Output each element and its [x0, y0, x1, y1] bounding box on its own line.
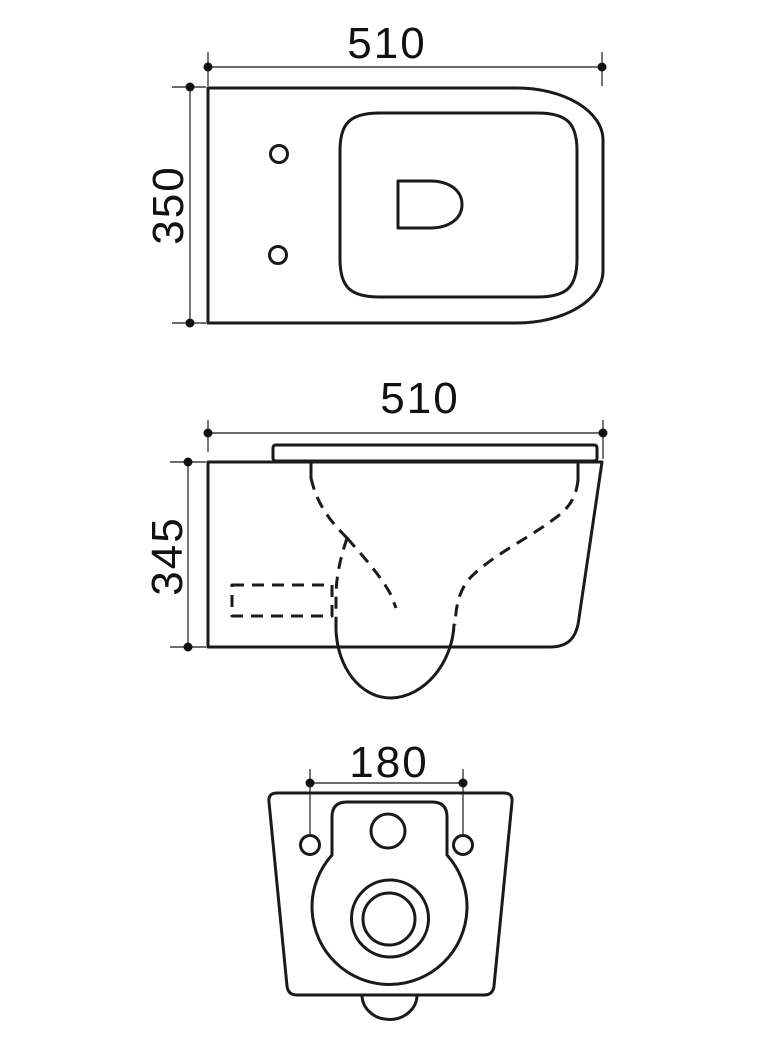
- top-view-outline: [208, 88, 603, 323]
- trapway-dashed-right: [455, 480, 578, 625]
- dim-endpoint-dot: [184, 458, 193, 467]
- side-view-height-label: 345: [143, 516, 192, 595]
- side-view-height-dimension: 345: [143, 458, 206, 652]
- side-view-outline: [208, 462, 602, 647]
- dim-endpoint-dot: [186, 83, 195, 92]
- top-view-depth-label: 350: [144, 165, 193, 244]
- dim-endpoint-dot: [598, 63, 607, 72]
- seat-fixing-hole-top: [271, 146, 288, 163]
- rear-view-hole-spacing-dimension: 180: [306, 738, 468, 836]
- dim-endpoint-dot: [599, 429, 608, 438]
- seat-opening-outline: [340, 113, 577, 297]
- fixing-hole-right: [454, 836, 473, 855]
- technical-drawing-page: 510 350 510: [0, 0, 780, 1040]
- wall-hung-toilet-drawing: 510 350 510: [0, 0, 780, 1040]
- dim-endpoint-dot: [459, 779, 468, 788]
- drain-outlet-inner: [363, 893, 415, 945]
- bowl-underside-arc: [336, 625, 454, 698]
- top-view-depth-dimension: 350: [144, 83, 206, 328]
- bottom-outlet-bump: [362, 995, 417, 1020]
- seat-fixing-hole-bottom: [270, 247, 287, 264]
- dim-endpoint-dot: [306, 779, 315, 788]
- inlet-box-dashed: [232, 585, 332, 616]
- dim-endpoint-dot: [186, 319, 195, 328]
- side-view-width-label: 510: [380, 374, 459, 423]
- extension-ticks: [208, 420, 603, 459]
- trapway-dashed-left: [311, 478, 396, 629]
- top-view: 510 350: [144, 19, 607, 328]
- side-view: 510 345: [143, 374, 608, 698]
- dim-endpoint-dot: [184, 643, 193, 652]
- dim-endpoint-dot: [204, 429, 213, 438]
- water-inlet-hole: [371, 814, 405, 848]
- rear-view-hole-spacing-label: 180: [349, 738, 428, 787]
- seat-lid-outline: [273, 445, 597, 461]
- dim-endpoint-dot: [204, 63, 213, 72]
- fixing-hole-left: [301, 836, 320, 855]
- top-view-width-label: 510: [347, 19, 426, 68]
- top-view-width-dimension: 510: [204, 19, 607, 86]
- flush-valve-outline: [398, 181, 462, 228]
- rear-view: 180: [269, 738, 512, 1020]
